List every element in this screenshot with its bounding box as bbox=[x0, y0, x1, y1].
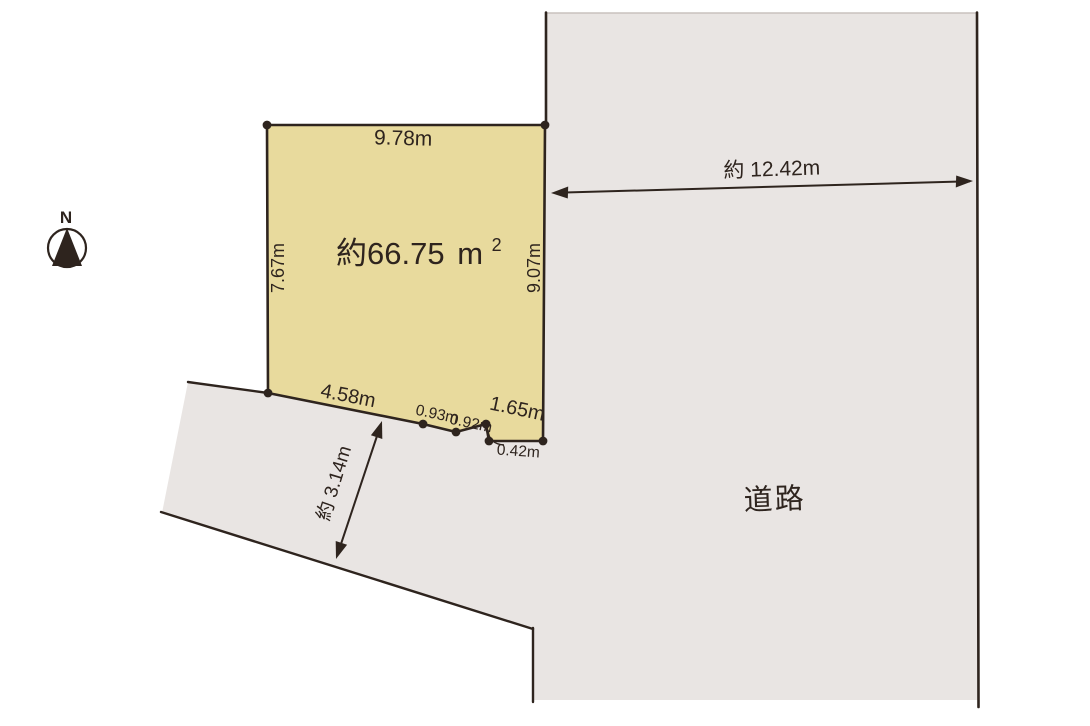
boundary-point bbox=[541, 121, 550, 130]
dimension-top: 9.78m bbox=[374, 126, 433, 151]
site-plan-page: N 約66.75 m 2 9.78m 7.67m 9.07m 4.58m 0.9… bbox=[0, 0, 1090, 726]
road-right-edge-line bbox=[977, 13, 979, 708]
site-plan-drawing: N 約66.75 m 2 9.78m 7.67m 9.07m 4.58m 0.9… bbox=[0, 0, 1090, 726]
compass-needle bbox=[52, 228, 82, 266]
north-compass-icon: N bbox=[48, 208, 86, 267]
dimension-left: 7.67m bbox=[268, 243, 288, 293]
dimension-step: 0.42m bbox=[496, 442, 540, 462]
land-plot-area bbox=[267, 125, 545, 441]
boundary-point bbox=[263, 121, 272, 130]
plot-area-label: 約66.75 m 2 bbox=[336, 235, 502, 271]
road-label: 道路 bbox=[743, 482, 806, 517]
north-label: N bbox=[60, 208, 72, 227]
road-width-east-label: 約 12.42m bbox=[723, 156, 821, 182]
plot-area-unit-exponent: 2 bbox=[492, 235, 502, 255]
plot-area-unit: m bbox=[457, 236, 483, 271]
plot-area-value: 約66.75 bbox=[336, 236, 445, 271]
dimension-right: 9.07m bbox=[524, 243, 544, 293]
boundary-point bbox=[264, 389, 273, 398]
